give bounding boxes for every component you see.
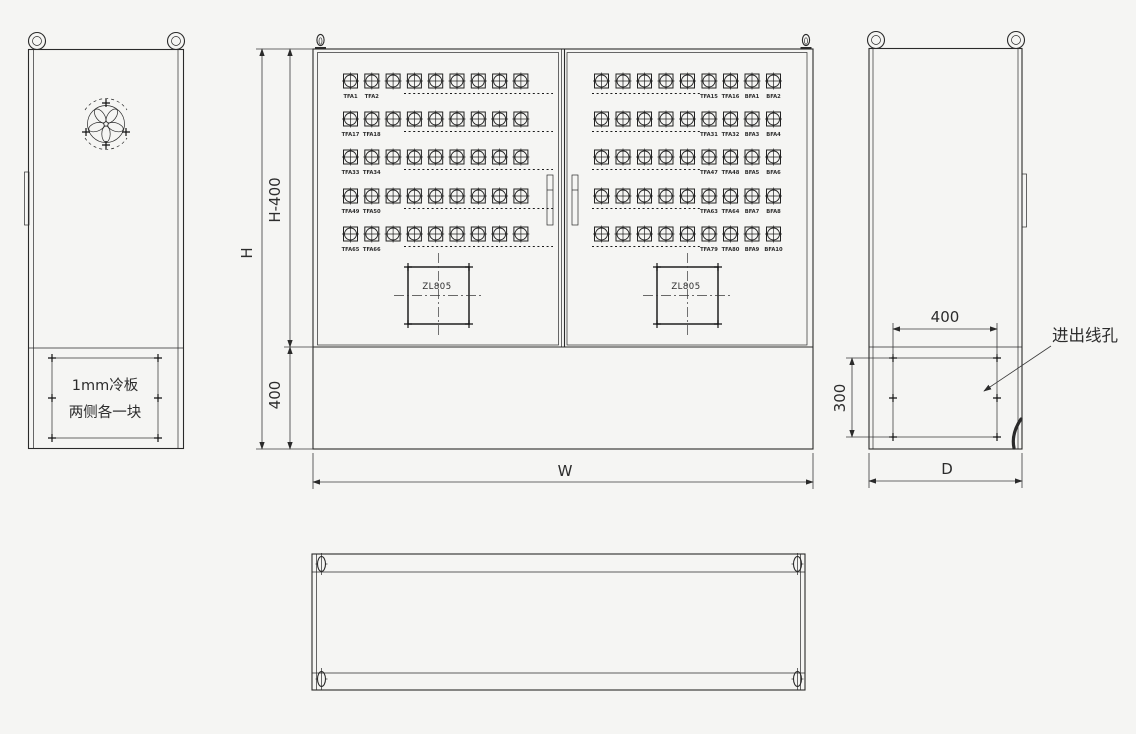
connector-label: BFA7	[745, 209, 760, 215]
top-view	[312, 553, 805, 690]
connector-symbol	[342, 73, 359, 90]
connector-label: TFA32	[722, 132, 740, 138]
connector-label: BFA5	[745, 170, 760, 176]
cutout-label: ZL805	[671, 282, 700, 292]
eyebolt-icon	[792, 668, 804, 690]
connector-label: TFA65	[342, 247, 360, 253]
lifting-ring-icon	[868, 32, 885, 49]
connector-symbol	[744, 149, 761, 166]
connector-label: TFA16	[722, 94, 740, 100]
dim-label-hole-width: 400	[931, 308, 960, 326]
connector-symbol	[636, 73, 653, 90]
connector-symbol	[491, 111, 508, 128]
connector-symbol	[679, 188, 696, 205]
connector-symbol	[406, 111, 423, 128]
connector-symbol	[427, 73, 444, 90]
connector-symbol	[679, 149, 696, 166]
connector-label: TFA49	[342, 209, 360, 215]
connector-label: BFA10	[764, 247, 783, 253]
connector-symbol	[636, 111, 653, 128]
connector-symbol	[722, 149, 739, 166]
connector-label: TFA2	[365, 94, 380, 100]
cutout-left: ZL805	[394, 253, 483, 338]
connector-label: BFA1	[745, 94, 760, 100]
dim-label-hole-height: 300	[831, 384, 849, 413]
connector-symbol	[449, 188, 466, 205]
connector-symbol	[385, 188, 402, 205]
connector-label: TFA17	[342, 132, 360, 138]
cable-entry-hole	[889, 354, 1001, 441]
connector-symbol	[615, 188, 632, 205]
connector-symbol	[701, 149, 718, 166]
connector-symbol	[658, 188, 675, 205]
connector-symbol	[427, 226, 444, 243]
connector-symbol	[512, 188, 529, 205]
cabinet-drawing: 1mm冷板 两侧各一块 TFA1TFA2TFA17TFA18TFA33TFA34…	[0, 0, 1136, 734]
connector-symbol	[363, 73, 380, 90]
left-door-handle	[547, 175, 553, 225]
dim-label-depth: D	[941, 460, 953, 478]
connector-symbol	[615, 149, 632, 166]
callout-text: 进出线孔	[1052, 326, 1118, 345]
eyebolt-icon	[316, 668, 328, 690]
connector-symbol	[385, 111, 402, 128]
connector-symbol	[636, 188, 653, 205]
connector-label: TFA18	[363, 132, 381, 138]
connector-symbol	[385, 149, 402, 166]
connector-symbol	[491, 73, 508, 90]
dim-label-height-lower: 400	[266, 381, 284, 410]
connector-label: BFA6	[766, 170, 781, 176]
connector-symbol	[449, 73, 466, 90]
connector-symbol	[363, 226, 380, 243]
connector-symbol	[701, 73, 718, 90]
connector-symbol	[363, 149, 380, 166]
connector-label: TFA66	[363, 247, 381, 253]
corner-arc	[1013, 419, 1021, 448]
connector-symbol	[342, 226, 359, 243]
connector-label: TFA1	[343, 94, 358, 100]
connector-symbol	[722, 226, 739, 243]
connector-symbol	[593, 188, 610, 205]
right-door-handle	[572, 175, 578, 225]
connector-symbol	[470, 73, 487, 90]
connector-symbol	[658, 149, 675, 166]
lifting-ring-icon	[29, 33, 46, 50]
connector-label: TFA50	[363, 209, 381, 215]
connector-symbol	[406, 226, 423, 243]
connector-symbol	[722, 188, 739, 205]
connector-label: TFA63	[700, 209, 718, 215]
connector-label: TFA33	[342, 170, 360, 176]
connector-symbol	[615, 111, 632, 128]
connector-symbol	[427, 188, 444, 205]
note-text-line2: 两侧各一块	[69, 404, 142, 421]
connector-symbol	[722, 73, 739, 90]
connector-symbol	[701, 226, 718, 243]
cold-plate-note: 1mm冷板 两侧各一块	[48, 354, 162, 442]
connector-symbol	[765, 149, 782, 166]
connector-symbol	[593, 111, 610, 128]
connector-symbol	[722, 111, 739, 128]
connector-symbol	[363, 188, 380, 205]
connector-label: BFA4	[766, 132, 781, 138]
connector-symbol	[636, 226, 653, 243]
door-handles	[547, 175, 578, 225]
top-view-outline	[312, 554, 805, 690]
connector-symbol	[385, 73, 402, 90]
connector-label: TFA64	[722, 209, 740, 215]
connector-symbol	[342, 188, 359, 205]
connector-symbol	[491, 188, 508, 205]
connector-symbol	[342, 111, 359, 128]
connector-symbol	[744, 226, 761, 243]
connector-label: TFA15	[700, 94, 718, 100]
right-side-view: 400 300 D 进出线孔	[831, 32, 1118, 489]
connector-symbol	[449, 226, 466, 243]
lifting-ring-icon	[168, 33, 185, 50]
connector-symbol	[658, 111, 675, 128]
right-door-connector-grid: TFA15TFA16BFA1BFA2TFA31TFA32BFA3BFA4TFA4…	[592, 73, 783, 254]
connector-symbol	[512, 149, 529, 166]
connector-label: BFA9	[745, 247, 760, 253]
connector-symbol	[470, 226, 487, 243]
cutout-label: ZL805	[422, 282, 451, 292]
connector-symbol	[449, 149, 466, 166]
dim-label-height-upper: H-400	[266, 177, 284, 222]
connector-symbol	[744, 188, 761, 205]
cable-hole-callout: 进出线孔	[984, 326, 1118, 391]
connector-symbol	[427, 111, 444, 128]
lifting-ring-icon	[1008, 32, 1025, 49]
connector-symbol	[744, 73, 761, 90]
door-handle	[1022, 174, 1027, 227]
dim-label-height-total: H	[238, 247, 256, 258]
dim-label-width: W	[558, 462, 573, 480]
connector-symbol	[491, 226, 508, 243]
connector-symbol	[765, 111, 782, 128]
connector-symbol	[512, 73, 529, 90]
connector-symbol	[427, 149, 444, 166]
connector-symbol	[449, 111, 466, 128]
connector-symbol	[406, 73, 423, 90]
connector-symbol	[593, 149, 610, 166]
connector-symbol	[615, 73, 632, 90]
connector-label: BFA3	[745, 132, 760, 138]
left-side-view: 1mm冷板 两侧各一块	[25, 33, 185, 449]
connector-symbol	[470, 149, 487, 166]
connector-symbol	[744, 111, 761, 128]
connector-symbol	[406, 149, 423, 166]
connector-symbol	[701, 188, 718, 205]
connector-symbol	[593, 226, 610, 243]
connector-label: BFA2	[766, 94, 781, 100]
connector-symbol	[701, 111, 718, 128]
connector-label: TFA48	[722, 170, 740, 176]
connector-label: TFA34	[363, 170, 381, 176]
connector-symbol	[679, 73, 696, 90]
connector-label: BFA8	[766, 209, 781, 215]
connector-symbol	[679, 226, 696, 243]
eyebolt-icon	[315, 34, 326, 48]
connector-symbol	[765, 73, 782, 90]
connector-label: TFA79	[700, 247, 718, 253]
connector-symbol	[593, 73, 610, 90]
connector-symbol	[765, 226, 782, 243]
connector-symbol	[470, 188, 487, 205]
connector-symbol	[491, 149, 508, 166]
connector-label: TFA47	[700, 170, 718, 176]
connector-symbol	[363, 111, 380, 128]
connector-symbol	[658, 226, 675, 243]
connector-symbol	[385, 226, 402, 243]
connector-symbol	[342, 149, 359, 166]
connector-symbol	[406, 188, 423, 205]
connector-symbol	[615, 226, 632, 243]
note-text-line1: 1mm冷板	[72, 376, 139, 394]
drawing-canvas: 1mm冷板 两侧各一块 TFA1TFA2TFA17TFA18TFA33TFA34…	[0, 0, 1136, 734]
connector-symbol	[470, 111, 487, 128]
connector-symbol	[658, 73, 675, 90]
connector-symbol	[636, 149, 653, 166]
connector-symbol	[679, 111, 696, 128]
connector-symbol	[765, 188, 782, 205]
connector-symbol	[512, 111, 529, 128]
connector-symbol	[512, 226, 529, 243]
eyebolt-icon	[801, 34, 812, 48]
connector-label: TFA31	[700, 132, 718, 138]
fan-icon	[82, 99, 130, 150]
front-view: TFA1TFA2TFA17TFA18TFA33TFA34TFA49TFA50TF…	[238, 34, 813, 489]
cabinet-side-body	[869, 49, 1022, 450]
connector-label: TFA80	[722, 247, 740, 253]
left-door-connector-grid: TFA1TFA2TFA17TFA18TFA33TFA34TFA49TFA50TF…	[342, 73, 553, 254]
cutout-right: ZL805	[643, 253, 732, 338]
